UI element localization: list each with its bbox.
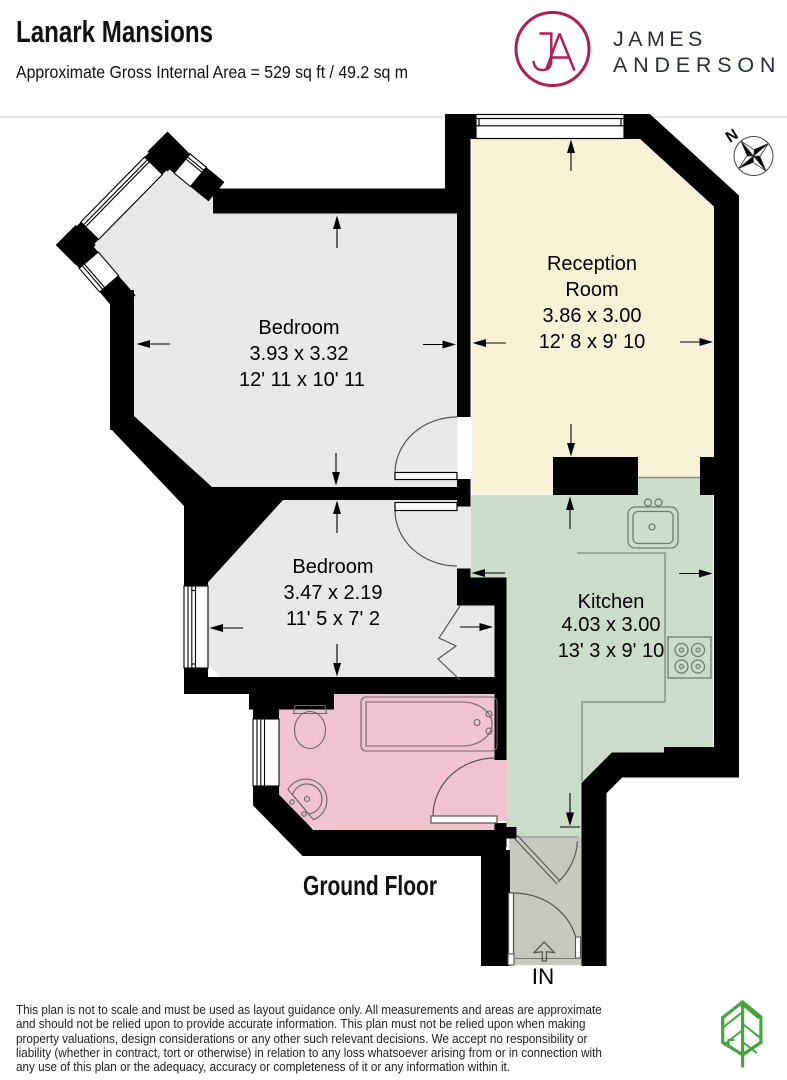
svg-text:3.93 x 3.32: 3.93 x 3.32 <box>250 343 349 365</box>
svg-text:Bedroom: Bedroom <box>258 317 339 339</box>
svg-text:13' 3 x 9' 10: 13' 3 x 9' 10 <box>558 640 665 662</box>
svg-text:Bedroom: Bedroom <box>292 556 373 578</box>
svg-text:Lanark Mansions: Lanark Mansions <box>16 14 213 49</box>
svg-text:Approximate Gross Internal Are: Approximate Gross Internal Area = 529 sq… <box>16 62 408 82</box>
svg-text:JAMES: JAMES <box>613 27 707 51</box>
svg-text:12' 11 x 10' 11: 12' 11 x 10' 11 <box>239 369 365 391</box>
svg-text:IN: IN <box>532 964 555 989</box>
svg-text:ANDERSON: ANDERSON <box>613 53 781 77</box>
svg-text:11' 5 x 7' 2: 11' 5 x 7' 2 <box>286 608 380 630</box>
svg-text:Reception: Reception <box>547 253 637 275</box>
svg-text:3.47 x 2.19: 3.47 x 2.19 <box>284 582 383 604</box>
svg-text:Ground Floor: Ground Floor <box>303 870 437 901</box>
svg-text:3.86 x 3.00: 3.86 x 3.00 <box>543 305 642 327</box>
svg-text:Room: Room <box>565 279 618 301</box>
svg-text:4.03 x 3.00: 4.03 x 3.00 <box>562 614 661 636</box>
svg-text:12' 8 x 9' 10: 12' 8 x 9' 10 <box>539 331 646 353</box>
svg-text:Kitchen: Kitchen <box>578 591 645 613</box>
